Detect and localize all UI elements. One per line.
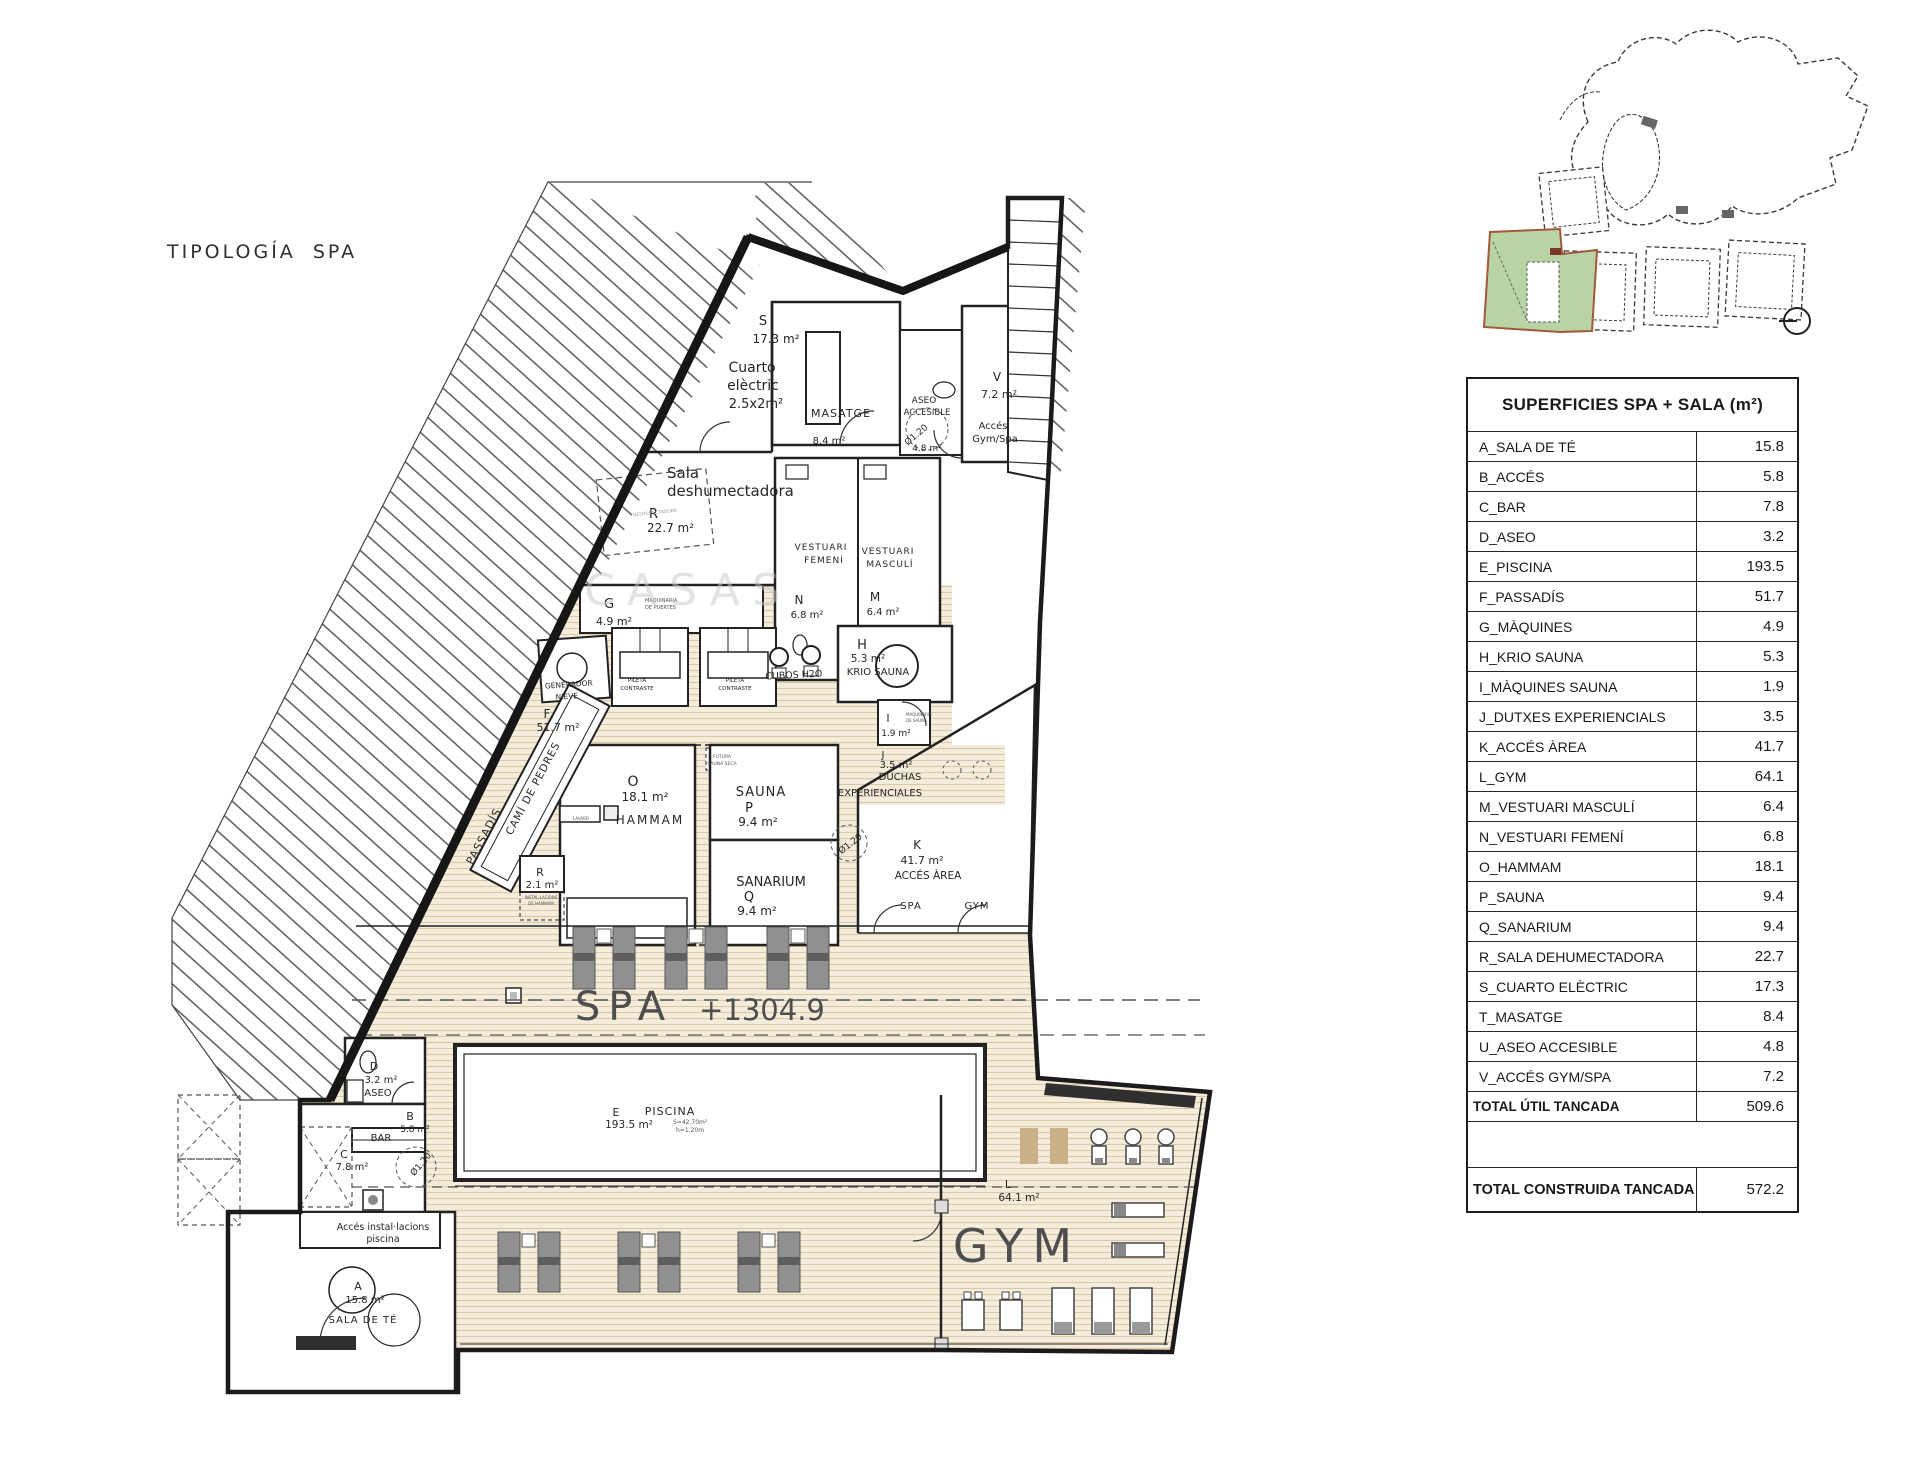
plan-label: R [536,866,544,879]
row-label: J_DUTXES EXPERIENCIALS [1468,702,1696,731]
plan-label: 5.8 m² [400,1125,430,1135]
row-label: C_BAR [1468,492,1696,521]
plan-label: P [745,801,753,816]
key-plan [1484,30,1868,332]
keyplan-building-outline [1572,30,1868,225]
plan-label: 18.1 m² [621,790,668,804]
row-value: 6.4 [1696,792,1797,821]
plan-label: O [627,774,638,790]
plan-label: 64.1 m² [998,1192,1039,1204]
plan-label: I [886,712,889,725]
plan-label: BAR [371,1133,392,1144]
plan-label: 3.2 m² [365,1075,398,1086]
plan-label: Q [744,890,754,905]
table-row: C_BAR7.8 [1468,491,1797,521]
plan-label: 6.8 m² [791,610,824,621]
row-label: H_KRIO SAUNA [1468,642,1696,671]
plan-label: SAUNA SECA [707,761,737,767]
table-row: M_VESTUARI MASCULÍ6.4 [1468,791,1797,821]
plan-label: PISCINA [645,1105,696,1118]
plan-label: 5.3 m² [851,653,885,665]
plan-label: elèctric [727,378,779,394]
plan-label: 51.7 m² [536,721,579,734]
row-label: B_ACCÉS [1468,462,1696,491]
page-title: TIPOLOGÍA SPA [167,241,357,263]
plan-label: SALA DE TÉ [329,1313,398,1326]
plan-label: PILETA [628,678,646,684]
plan-label: CONTRASTE [718,686,752,692]
plan-label: S=42.70m² [673,1119,708,1126]
row-value: 7.8 [1696,492,1797,521]
table-row: Q_SANARIUM9.4 [1468,911,1797,941]
table-row: G_MÀQUINES4.9 [1468,611,1797,641]
plan-label: DE SAUNA [906,718,927,723]
row-value: 9.4 [1696,912,1797,941]
plan-label: D [370,1060,378,1073]
table-row: I_MÀQUINES SAUNA1.9 [1468,671,1797,701]
surfaces-table-rows: A_SALA DE TÉ15.8B_ACCÉS5.8C_BAR7.8D_ASEO… [1468,431,1797,1091]
row-value: 6.8 [1696,822,1797,851]
plan-label: piscina [366,1234,399,1245]
plan-label: N [795,593,804,607]
row-label: A_SALA DE TÉ [1468,432,1696,461]
plan-label: VESTUARI [862,547,915,557]
table-row: V_ACCÉS GYM/SPA7.2 [1468,1061,1797,1091]
plan-label: CONTRASTE [620,686,654,692]
table-row: P_SAUNA9.4 [1468,881,1797,911]
table-row: B_ACCÉS5.8 [1468,461,1797,491]
plan-label: 8.4 m² [813,436,846,447]
plan-label: 7.8 m² [336,1162,369,1173]
row-label: G_MÀQUINES [1468,612,1696,641]
plan-label: DUCHAS [879,772,922,783]
plan-label: Gym/Spa [972,434,1018,445]
table-row: K_ACCÉS ÀREA41.7 [1468,731,1797,761]
row-label: L_GYM [1468,762,1696,791]
row-value: 22.7 [1696,942,1797,971]
plan-label: FUTURA [713,754,732,760]
bench [1130,1288,1152,1334]
plan-label: 41.7 m² [900,854,943,867]
plan-label: ACCÉS ÀREA [895,869,962,882]
plan-label: 2.1 m² [526,880,559,891]
table-row: H_KRIO SAUNA5.3 [1468,641,1797,671]
plan-label: S [759,314,767,329]
keyplan-terrace [1539,167,1609,237]
plan-label: 193.5 m² [605,1119,653,1131]
table-row: U_ASEO ACCESIBLE4.8 [1468,1031,1797,1061]
row-value: 3.5 [1696,702,1797,731]
spacer-row [1468,1121,1797,1167]
row-label: Q_SANARIUM [1468,912,1696,941]
row-label: E_PISCINA [1468,552,1696,581]
row-value: 3.2 [1696,522,1797,551]
row-label: V_ACCÉS GYM/SPA [1468,1062,1696,1091]
watermark: CASAS [584,565,792,616]
table-row: R_SALA DEHUMECTADORA22.7 [1468,941,1797,971]
row-label: M_VESTUARI MASCULÍ [1468,792,1696,821]
row-value: 51.7 [1696,582,1797,611]
plan-label: VESTUARI [795,543,848,553]
plan-label: FEMENÍ [804,554,844,566]
table-row: N_VESTUARI FEMENÍ6.8 [1468,821,1797,851]
row-value: 4.8 [1696,1032,1797,1061]
plan-sheet: TIPOLOGÍA SPA [0,0,1919,1481]
plan-label: KRIO SAUNA [847,667,910,678]
exercise-bike [1158,1129,1174,1164]
gym-mat [1020,1128,1038,1164]
plan-label: NIEVE [555,691,578,702]
rowing-machine [1112,1203,1164,1217]
table-row: E_PISCINA193.5 [1468,551,1797,581]
plan-label: K [913,838,922,852]
row-label: U_ASEO ACCESIBLE [1468,1032,1696,1061]
row-value: 17.3 [1696,972,1797,1001]
table-row: S_CUARTO ELÈCTRIC17.3 [1468,971,1797,1001]
plan-label: E [613,1106,620,1119]
table-row: A_SALA DE TÉ15.8 [1468,431,1797,461]
rowing-machine [1112,1243,1164,1257]
zone-label-spa: SPA [575,984,673,1030]
row-value: 18.1 [1696,852,1797,881]
plan-label: HAMMAM [616,813,685,827]
row-value: 7.2 [1696,1062,1797,1091]
plan-label: EXPERIENCIALES [838,788,922,799]
pool [455,1045,985,1180]
total-util-row: TOTAL ÚTIL TANCADA 509.6 [1468,1091,1797,1121]
plan-label: SAUNA [736,785,787,800]
plan-label: GYM [965,901,990,912]
surfaces-table: SUPERFICIES SPA + SALA (m²) A_SALA DE TÉ… [1466,377,1799,1213]
plan-label: 2.5x2m² [729,397,784,412]
plan-label: M [870,590,880,604]
row-value: 1.9 [1696,672,1797,701]
row-value: 41.7 [1696,732,1797,761]
row-label: K_ACCÉS ÀREA [1468,732,1696,761]
table-row: J_DUTXES EXPERIENCIALS3.5 [1468,701,1797,731]
plan-label: 15.8 m² [345,1295,384,1306]
keyplan-terrace [1644,247,1721,328]
row-label: TOTAL CONSTRUIDA TANCADA [1468,1168,1696,1211]
row-value: 5.8 [1696,462,1797,491]
row-label: TOTAL ÚTIL TANCADA [1468,1092,1696,1121]
row-label: D_ASEO [1468,522,1696,551]
plan-label: 9.4 m² [737,904,777,918]
plan-label: MAQUINÀRIA [906,712,932,717]
bench [1092,1288,1114,1334]
row-value: 4.9 [1696,612,1797,641]
table-row: L_GYM64.1 [1468,761,1797,791]
plan-label: INSTAL·LACIONS [525,895,558,900]
plan-label: LAVABO [573,816,589,821]
row-value: 64.1 [1696,762,1797,791]
plan-label: A [354,1280,362,1293]
zone-label-gym: GYM [953,1219,1081,1273]
plan-label: DE HAMMAM [528,901,554,906]
plan-label: L [1005,1178,1012,1191]
row-value: 5.3 [1696,642,1797,671]
plan-label: H [857,638,867,653]
plan-label: PILETA [726,678,744,684]
plan-label: 4.9 m² [596,615,632,628]
plan-label: ASEO [364,1088,392,1099]
plan-label: 6.4 m² [867,607,900,618]
table-row: T_MASATGE8.4 [1468,1001,1797,1031]
row-value: 193.5 [1696,552,1797,581]
plan-label: 17.3 m² [752,332,799,346]
table-row: O_HAMMAM18.1 [1468,851,1797,881]
plan-label: V [993,370,1002,384]
table-row: D_ASEO3.2 [1468,521,1797,551]
row-value: 8.4 [1696,1002,1797,1031]
plan-label: 4.8 m² [912,444,942,454]
row-label: O_HAMMAM [1468,852,1696,881]
plan-label: SPA [900,901,922,912]
plan-label: Sala [667,464,699,482]
row-label: I_MÀQUINES SAUNA [1468,672,1696,701]
salate-wall-bar [296,1336,356,1350]
pileta-contraste-1 [612,628,688,706]
plan-label: C [340,1148,348,1161]
plan-label: B [406,1110,414,1123]
plan-label: F [544,707,551,721]
exercise-bike [1091,1129,1107,1164]
row-value: 572.2 [1696,1168,1797,1211]
plan-label: ACCESIBLE [904,408,951,418]
gym-mat [1050,1128,1068,1164]
plan-label: SANARIUM [736,875,806,890]
row-label: P_SAUNA [1468,882,1696,911]
plan-label: h=1.20m [676,1127,704,1134]
bench [1052,1288,1074,1334]
row-label: T_MASATGE [1468,1002,1696,1031]
plan-label: Accés instal·lacions [337,1222,430,1233]
plan-label: MASCULÍ [866,558,913,570]
level-label: +1304.9 [699,993,825,1027]
row-label: N_VESTUARI FEMENÍ [1468,822,1696,851]
plan-label: 1.9 m² [881,729,911,739]
table-row: F_PASSADÍS51.7 [1468,581,1797,611]
row-label: R_SALA DEHUMECTADORA [1468,942,1696,971]
plan-label: MASATGE [811,407,871,420]
plan-label: 3.5 m² [880,760,913,771]
plan-label: deshumectadora [667,482,794,500]
plan-label: 22.7 m² [647,521,694,535]
row-label: S_CUARTO ELÈCTRIC [1468,972,1696,1001]
plan-label: 9.4 m² [738,815,778,829]
plan-label: ASEO [912,396,937,406]
row-value: 9.4 [1696,882,1797,911]
total-built-row: TOTAL CONSTRUIDA TANCADA 572.2 [1468,1167,1797,1211]
plan-label: Cuarto [728,360,775,376]
pileta-contraste-2 [700,628,776,706]
row-value: 509.6 [1696,1092,1797,1121]
row-value: 15.8 [1696,432,1797,461]
row-label: F_PASSADÍS [1468,582,1696,611]
exercise-bike [1125,1129,1141,1164]
plan-label: Accés [978,420,1007,432]
plan-label: 7.2 m² [981,388,1017,401]
surfaces-table-title: SUPERFICIES SPA + SALA (m²) [1468,379,1797,431]
